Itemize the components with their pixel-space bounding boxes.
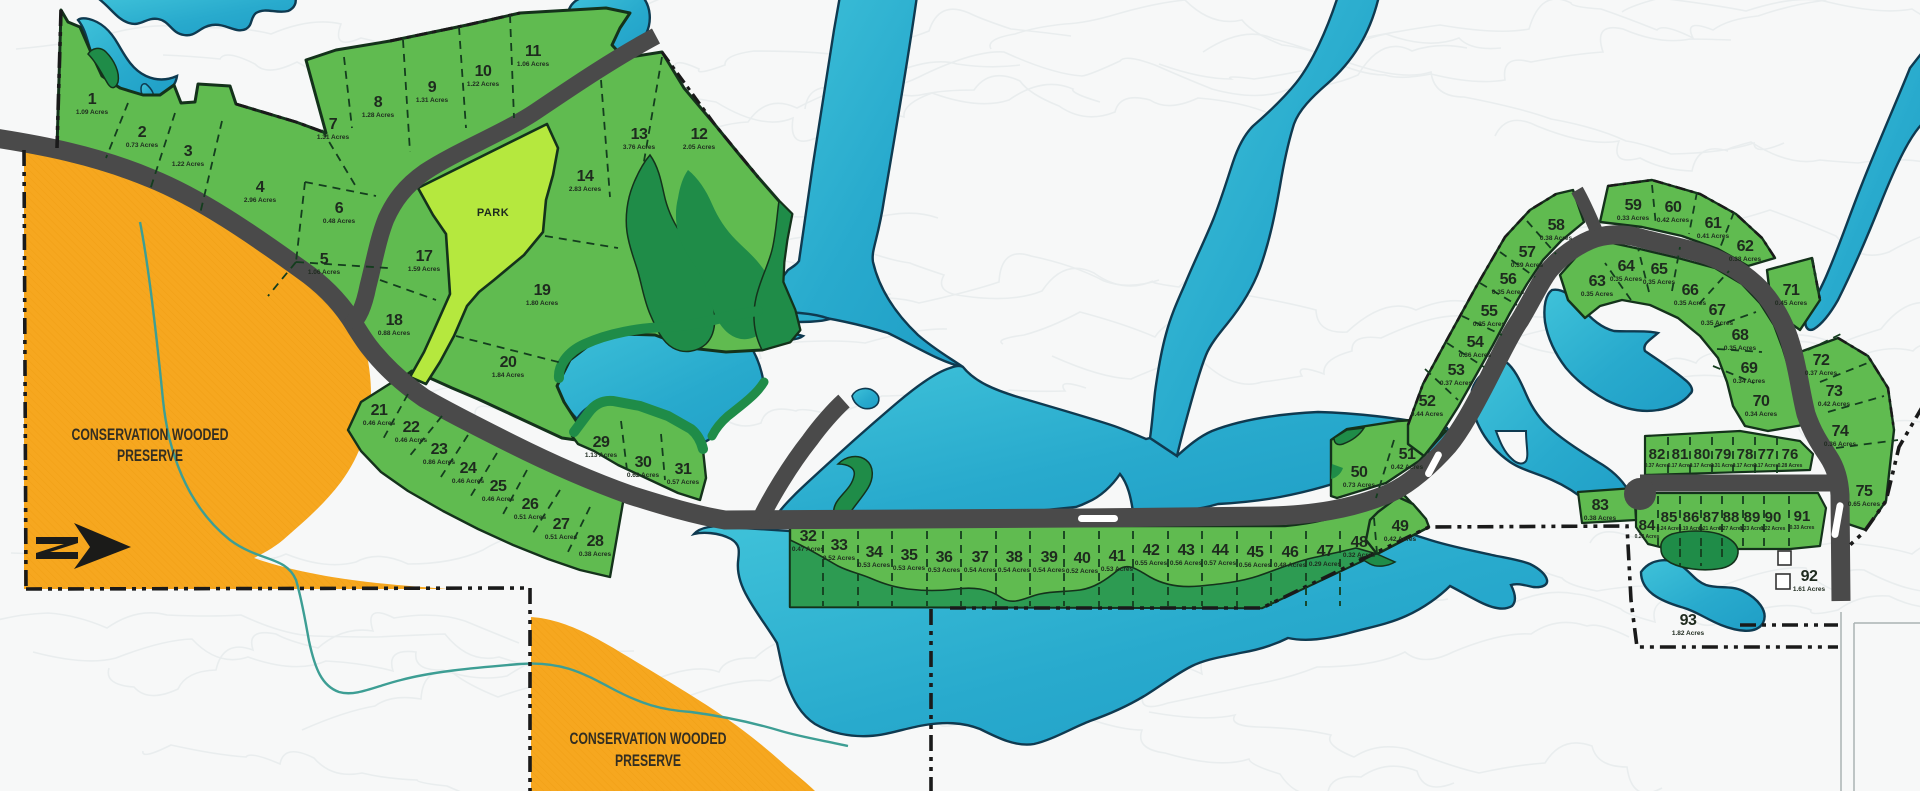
svg-text:93: 93: [1680, 612, 1697, 629]
svg-text:0.48 Acres: 0.48 Acres: [1274, 562, 1307, 569]
svg-text:58: 58: [1548, 217, 1565, 234]
svg-text:0.41 Acres: 0.41 Acres: [1697, 233, 1730, 240]
svg-text:17: 17: [416, 248, 433, 265]
svg-text:0.44 Acres: 0.44 Acres: [1411, 411, 1444, 418]
svg-text:0.53 Acres: 0.53 Acres: [928, 567, 961, 574]
svg-text:20: 20: [500, 354, 517, 371]
svg-text:0.38 Acres: 0.38 Acres: [1540, 235, 1573, 242]
svg-text:78: 78: [1737, 446, 1754, 463]
svg-text:0.36 Acres: 0.36 Acres: [1459, 352, 1492, 359]
svg-text:32: 32: [800, 528, 817, 545]
svg-text:0.52 Acres: 0.52 Acres: [1066, 568, 1099, 575]
svg-text:1.61 Acres: 1.61 Acres: [1793, 586, 1826, 593]
svg-text:87: 87: [1703, 509, 1720, 526]
svg-text:0.38 Acres: 0.38 Acres: [1729, 256, 1762, 263]
svg-text:7: 7: [329, 116, 338, 133]
svg-text:19: 19: [534, 282, 551, 299]
svg-text:1.82 Acres: 1.82 Acres: [1672, 630, 1705, 637]
svg-text:PARK: PARK: [477, 207, 509, 219]
svg-text:0.38 Acres: 0.38 Acres: [1584, 515, 1617, 522]
svg-text:48: 48: [1351, 534, 1368, 551]
svg-text:0.33 Acres: 0.33 Acres: [1790, 525, 1815, 531]
svg-text:0.52 Acres: 0.52 Acres: [823, 555, 856, 562]
svg-text:0.42 Acres: 0.42 Acres: [1657, 217, 1690, 224]
svg-text:0.47 Acres: 0.47 Acres: [792, 546, 825, 553]
svg-text:0.53 Acres: 0.53 Acres: [858, 562, 891, 569]
svg-text:1.31 Acres: 1.31 Acres: [416, 97, 449, 104]
svg-text:1.06 Acres: 1.06 Acres: [517, 61, 550, 68]
svg-text:72: 72: [1813, 352, 1830, 369]
svg-text:69: 69: [1741, 360, 1758, 377]
svg-text:74: 74: [1832, 423, 1849, 440]
svg-text:26: 26: [522, 496, 539, 513]
svg-text:0.56 Acres: 0.56 Acres: [1170, 560, 1203, 567]
svg-text:79: 79: [1715, 446, 1732, 463]
svg-text:0.73 Acres: 0.73 Acres: [126, 142, 159, 149]
svg-text:2: 2: [138, 124, 147, 141]
svg-text:14: 14: [577, 168, 594, 185]
svg-text:67: 67: [1709, 302, 1726, 319]
svg-text:0.37 Acres: 0.37 Acres: [1805, 370, 1838, 377]
svg-text:0.29 Acres: 0.29 Acres: [1309, 561, 1342, 568]
svg-text:0.57 Acres: 0.57 Acres: [1204, 560, 1237, 567]
svg-text:1.59 Acres: 1.59 Acres: [408, 266, 441, 273]
svg-text:64: 64: [1618, 258, 1635, 275]
svg-text:21: 21: [371, 402, 388, 419]
svg-text:0.51 Acres: 0.51 Acres: [545, 534, 578, 541]
svg-text:3.76 Acres: 3.76 Acres: [623, 144, 656, 151]
svg-text:29: 29: [593, 434, 610, 451]
svg-text:0.37 Acres: 0.37 Acres: [1440, 380, 1473, 387]
svg-text:47: 47: [1317, 543, 1334, 560]
svg-text:1.84 Acres: 1.84 Acres: [492, 372, 525, 379]
svg-text:46: 46: [1282, 544, 1299, 561]
svg-text:0.35 Acres: 0.35 Acres: [1473, 321, 1506, 328]
svg-text:81: 81: [1672, 446, 1689, 463]
svg-text:88: 88: [1723, 509, 1740, 526]
svg-text:0.46 Acres: 0.46 Acres: [363, 420, 396, 427]
svg-text:PRESERVE: PRESERVE: [615, 751, 681, 770]
svg-text:43: 43: [1178, 542, 1195, 559]
svg-text:0.35 Acres: 0.35 Acres: [1610, 276, 1643, 283]
svg-text:0.51 Acres: 0.51 Acres: [514, 514, 547, 521]
svg-text:37: 37: [972, 549, 989, 566]
svg-text:31: 31: [675, 461, 692, 478]
svg-text:0.86 Acres: 0.86 Acres: [423, 459, 456, 466]
svg-text:0.35 Acres: 0.35 Acres: [1674, 300, 1707, 307]
svg-text:85: 85: [1661, 509, 1678, 526]
svg-text:76: 76: [1782, 446, 1799, 463]
svg-text:50: 50: [1351, 464, 1368, 481]
svg-text:0.42 Acres: 0.42 Acres: [1384, 536, 1417, 543]
svg-text:1.09 Acres: 1.09 Acres: [76, 109, 109, 116]
svg-text:0.62 Acres: 0.62 Acres: [627, 472, 660, 479]
svg-text:40: 40: [1074, 550, 1091, 567]
svg-text:0.17 Acres: 0.17 Acres: [1668, 463, 1693, 469]
svg-text:CONSERVATION WOODED: CONSERVATION WOODED: [570, 729, 727, 748]
svg-text:0.35 Acres: 0.35 Acres: [1643, 279, 1676, 286]
svg-text:56: 56: [1500, 271, 1517, 288]
svg-text:1.31 Acres: 1.31 Acres: [317, 134, 350, 141]
svg-text:92: 92: [1801, 568, 1818, 585]
svg-text:68: 68: [1732, 327, 1749, 344]
svg-text:0.65 Acres: 0.65 Acres: [1848, 501, 1881, 508]
svg-text:49: 49: [1392, 518, 1409, 535]
svg-text:1.13 Acres: 1.13 Acres: [585, 452, 618, 459]
svg-text:0.39 Acres: 0.39 Acres: [1511, 262, 1544, 269]
svg-text:51: 51: [1399, 446, 1416, 463]
svg-text:11: 11: [525, 43, 542, 60]
svg-text:0.38 Acres: 0.38 Acres: [579, 551, 612, 558]
svg-text:70: 70: [1753, 393, 1770, 410]
svg-text:65: 65: [1651, 261, 1668, 278]
svg-text:22: 22: [403, 419, 420, 436]
svg-text:2.83 Acres: 2.83 Acres: [569, 186, 602, 193]
svg-text:59: 59: [1625, 197, 1642, 214]
svg-text:57: 57: [1519, 244, 1536, 261]
svg-text:0.28 Acres: 0.28 Acres: [1778, 463, 1803, 469]
svg-text:0.32 Acres: 0.32 Acres: [1343, 552, 1376, 559]
svg-text:54: 54: [1467, 334, 1484, 351]
svg-text:4: 4: [256, 179, 265, 196]
svg-text:86: 86: [1683, 509, 1700, 526]
svg-text:66: 66: [1682, 282, 1699, 299]
svg-text:89: 89: [1744, 509, 1761, 526]
svg-text:27: 27: [553, 516, 570, 533]
svg-text:82: 82: [1649, 446, 1666, 463]
svg-text:0.17 Acres: 0.17 Acres: [1733, 463, 1758, 469]
svg-text:0.42 Acres: 0.42 Acres: [1818, 401, 1851, 408]
svg-text:73: 73: [1826, 383, 1843, 400]
svg-text:41: 41: [1109, 548, 1126, 565]
svg-text:91: 91: [1794, 508, 1811, 525]
svg-text:0.35 Acres: 0.35 Acres: [1724, 345, 1757, 352]
svg-text:53: 53: [1448, 362, 1465, 379]
svg-text:0.46 Acres: 0.46 Acres: [452, 478, 485, 485]
svg-text:36: 36: [936, 549, 953, 566]
svg-text:24: 24: [460, 460, 477, 477]
svg-text:0.34 Acres: 0.34 Acres: [1745, 411, 1778, 418]
svg-text:33: 33: [831, 537, 848, 554]
svg-text:0.42 Acres: 0.42 Acres: [1391, 464, 1424, 471]
svg-text:0.88 Acres: 0.88 Acres: [378, 330, 411, 337]
svg-text:1.06 Acres: 1.06 Acres: [308, 269, 341, 276]
svg-text:0.45 Acres: 0.45 Acres: [1775, 300, 1808, 307]
svg-text:80: 80: [1694, 446, 1711, 463]
svg-text:0.56 Acres: 0.56 Acres: [1239, 562, 1272, 569]
svg-text:10: 10: [475, 63, 492, 80]
svg-text:0.53 Acres: 0.53 Acres: [1101, 566, 1134, 573]
svg-text:38: 38: [1006, 549, 1023, 566]
svg-text:62: 62: [1737, 238, 1754, 255]
svg-text:0.17 Acres: 0.17 Acres: [1690, 463, 1715, 469]
svg-text:55: 55: [1481, 303, 1498, 320]
svg-text:1.80 Acres: 1.80 Acres: [526, 300, 559, 307]
svg-text:PRESERVE: PRESERVE: [117, 446, 183, 465]
svg-text:63: 63: [1589, 273, 1606, 290]
svg-text:0.37 Acres: 0.37 Acres: [1645, 463, 1670, 469]
svg-text:25: 25: [490, 478, 507, 495]
svg-text:0.28 Acres: 0.28 Acres: [1635, 534, 1660, 540]
svg-text:0.46 Acres: 0.46 Acres: [395, 437, 428, 444]
svg-text:1.28 Acres: 1.28 Acres: [362, 112, 395, 119]
svg-text:2.96 Acres: 2.96 Acres: [244, 197, 277, 204]
svg-text:0.34 Acres: 0.34 Acres: [1733, 378, 1766, 385]
svg-text:71: 71: [1783, 282, 1800, 299]
svg-text:18: 18: [386, 312, 403, 329]
svg-text:0.54 Acres: 0.54 Acres: [1033, 567, 1066, 574]
svg-text:45: 45: [1247, 544, 1264, 561]
svg-text:60: 60: [1665, 199, 1682, 216]
svg-text:0.36 Acres: 0.36 Acres: [1824, 441, 1857, 448]
svg-text:42: 42: [1143, 542, 1160, 559]
svg-text:75: 75: [1856, 483, 1873, 500]
svg-text:0.22 Acres: 0.22 Acres: [1761, 526, 1786, 532]
svg-text:6: 6: [335, 200, 344, 217]
svg-text:0.33 Acres: 0.33 Acres: [1617, 215, 1650, 222]
svg-text:3: 3: [184, 143, 193, 160]
svg-text:61: 61: [1705, 215, 1722, 232]
svg-text:23: 23: [431, 441, 448, 458]
svg-text:0.35 Acres: 0.35 Acres: [1492, 289, 1525, 296]
svg-text:2.05 Acres: 2.05 Acres: [683, 144, 716, 151]
svg-text:35: 35: [901, 547, 918, 564]
svg-text:83: 83: [1592, 497, 1609, 514]
svg-text:0.53 Acres: 0.53 Acres: [893, 565, 926, 572]
svg-text:52: 52: [1419, 393, 1436, 410]
svg-text:0.54 Acres: 0.54 Acres: [998, 567, 1031, 574]
svg-text:8: 8: [374, 94, 383, 111]
svg-text:9: 9: [428, 79, 437, 96]
svg-text:77: 77: [1758, 446, 1775, 463]
svg-text:13: 13: [631, 126, 648, 143]
svg-text:12: 12: [691, 126, 708, 143]
svg-text:84: 84: [1639, 517, 1656, 534]
svg-text:44: 44: [1212, 542, 1229, 559]
svg-text:28: 28: [587, 533, 604, 550]
svg-text:30: 30: [635, 454, 652, 471]
svg-text:0.73 Acres: 0.73 Acres: [1343, 482, 1376, 489]
svg-text:0.57 Acres: 0.57 Acres: [667, 479, 700, 486]
svg-text:0.35 Acres: 0.35 Acres: [1701, 320, 1734, 327]
svg-text:5: 5: [320, 251, 329, 268]
svg-text:0.55 Acres: 0.55 Acres: [1135, 560, 1168, 567]
svg-text:1.22 Acres: 1.22 Acres: [467, 81, 500, 88]
svg-text:0.48 Acres: 0.48 Acres: [323, 218, 356, 225]
svg-text:39: 39: [1041, 549, 1058, 566]
svg-text:1: 1: [88, 91, 97, 108]
svg-text:0.54 Acres: 0.54 Acres: [964, 567, 997, 574]
svg-text:90: 90: [1765, 509, 1782, 526]
svg-text:1.22 Acres: 1.22 Acres: [172, 161, 205, 168]
svg-text:0.35 Acres: 0.35 Acres: [1581, 291, 1614, 298]
svg-text:34: 34: [866, 544, 883, 561]
svg-text:CONSERVATION WOODED: CONSERVATION WOODED: [72, 425, 229, 444]
svg-text:0.46 Acres: 0.46 Acres: [482, 496, 515, 503]
